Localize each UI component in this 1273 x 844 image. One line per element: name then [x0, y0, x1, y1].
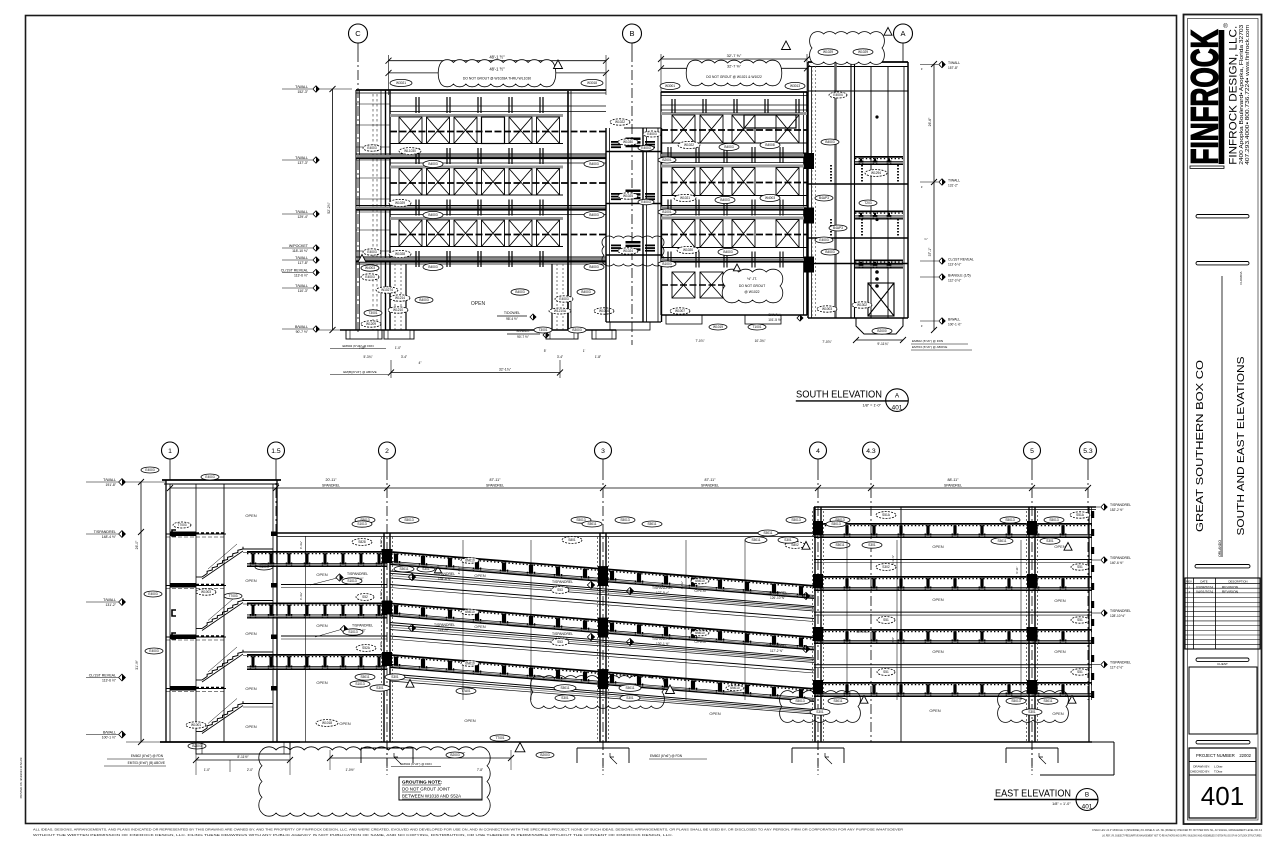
svg-text:48'-1 ½": 48'-1 ½" [489, 55, 505, 60]
svg-text:OPEN: OPEN [245, 513, 256, 518]
svg-text:S53: S53 [557, 640, 563, 644]
svg-text:6N010: 6N010 [695, 579, 705, 583]
svg-text:S301: S301 [868, 543, 876, 547]
svg-text:87'-11": 87'-11" [490, 478, 502, 482]
svg-text:B2003: B2003 [540, 753, 549, 757]
svg-text:8'-0⅜": 8'-0⅜" [379, 591, 383, 599]
svg-text:ALL IDEAS, DESIGNS, ARRANGEMEN: ALL IDEAS, DESIGNS, ARRANGEMENTS, AND PL… [33, 828, 903, 832]
svg-text:S301: S301 [1028, 710, 1036, 714]
svg-text:T/SPANDREL: T/SPANDREL [552, 580, 573, 584]
svg-text:SPANDREL: SPANDREL [322, 484, 340, 488]
svg-text:OPEN: OPEN [694, 639, 705, 644]
svg-text:S5013: S5013 [1005, 518, 1014, 522]
svg-text:T/SPANDREL: T/SPANDREL [347, 572, 368, 576]
svg-text:W1022: W1022 [684, 143, 694, 147]
svg-text:T/SPANDREL: T/SPANDREL [766, 644, 787, 648]
svg-text:T/WALL: T/WALL [948, 61, 960, 65]
svg-text:W1214: W1214 [395, 296, 405, 300]
svg-text:E4004: E4004 [833, 93, 842, 97]
svg-text:CHALK LEV: 24 4" MODULE: 0 (: CHALK LEV: 24 4" MODULE: 0 (SPANDREL) 8:… [1092, 829, 1263, 832]
svg-text:W3013: W3013 [790, 84, 800, 88]
svg-text:T/SPANDREL: T/SPANDREL [352, 624, 373, 628]
svg-text:EM602 (6"x6") @ FDN: EM602 (6"x6") @ FDN [912, 339, 943, 343]
svg-text:6'-4¾": 6'-4¾" [299, 541, 303, 549]
svg-text:32'-1¾": 32'-1¾" [499, 368, 512, 372]
svg-text:OPEN: OPEN [316, 572, 327, 577]
svg-text:137'-3": 137'-3" [297, 161, 308, 165]
svg-text:REV: REV [1186, 580, 1192, 584]
svg-text:W1029: W1029 [395, 201, 405, 205]
svg-text:FLORIDA: FLORIDA [1239, 271, 1243, 284]
svg-text:SOUTH ELEVATION: SOUTH ELEVATION [796, 390, 882, 401]
svg-text:T/WALL: T/WALL [103, 478, 116, 482]
svg-text:W1209: W1209 [366, 322, 376, 326]
svg-text:T/SPANDREL: T/SPANDREL [434, 572, 455, 576]
svg-text:T/WALL: T/WALL [948, 179, 960, 183]
svg-text:129'-4": 129'-4" [297, 215, 308, 219]
svg-text:SOUTH AND EAST ELEVATIONS: SOUTH AND EAST ELEVATIONS [1236, 356, 1247, 535]
svg-text:W1020: W1020 [683, 248, 693, 252]
svg-text:4'-8¾": 4'-8¾" [457, 566, 461, 574]
svg-text:W1210: W1210 [393, 308, 403, 312]
svg-text:6N010: 6N010 [730, 686, 740, 690]
svg-text:B4AP3: B4AP3 [819, 196, 829, 200]
svg-text:S5011: S5011 [588, 522, 597, 526]
svg-text:OPEN: OPEN [316, 623, 327, 628]
svg-text:7'-0⅞": 7'-0⅞" [822, 340, 832, 344]
svg-text:T7003: T7003 [228, 594, 237, 598]
svg-text:S301: S301 [391, 675, 399, 679]
svg-text:W/POCKET: W/POCKET [289, 244, 309, 248]
svg-text:DO NOT GROUT @ W1028A THRU WL1: DO NOT GROUT @ W1028A THRU WL1030 [463, 77, 531, 81]
svg-text:BETWEEN W1018 AND S52A: BETWEEN W1018 AND S52A [402, 794, 461, 799]
svg-text:S51: S51 [1077, 565, 1083, 569]
svg-text:OPEN: OPEN [471, 301, 486, 307]
svg-text:B4003: B4003 [419, 298, 428, 302]
svg-text:OPEN: OPEN [1054, 544, 1065, 549]
svg-text:5.3: 5.3 [1083, 448, 1093, 455]
svg-text:W1029: W1029 [858, 50, 868, 54]
svg-text:6N010: 6N010 [465, 559, 475, 563]
svg-text:PRINTED ON: 4/12/2024 10:52 AM: PRINTED ON: 4/12/2024 10:52 AM [19, 758, 23, 799]
svg-text:S51: S51 [883, 670, 889, 674]
svg-text:W4003: W4003 [765, 196, 775, 200]
svg-text:¾": ¾" [924, 237, 928, 241]
svg-text:3'-4": 3'-4" [557, 355, 563, 359]
svg-text:EM703 (6"x6") (B) ABOVE: EM703 (6"x6") (B) ABOVE [128, 761, 165, 765]
svg-text:B4003: B4003 [428, 162, 437, 166]
svg-text:B4003: B4003 [428, 213, 437, 217]
svg-text:SPANDREL: SPANDREL [944, 484, 962, 488]
svg-text:S5011: S5011 [561, 686, 570, 690]
svg-text:4: 4 [816, 448, 820, 455]
svg-text:191'-8": 191'-8" [105, 483, 116, 487]
svg-text:T3001: T3001 [368, 311, 377, 315]
svg-text:B4003: B4003 [720, 198, 729, 202]
svg-text:S5011: S5011 [752, 538, 761, 542]
svg-text:B4008: B4008 [765, 143, 774, 147]
svg-text:4.3: 4.3 [866, 448, 876, 455]
svg-text:134'-8 ½": 134'-8 ½" [438, 577, 451, 581]
svg-text:S5013: S5013 [1011, 699, 1020, 703]
svg-text:DO NOT GROUT: DO NOT GROUT [739, 284, 765, 288]
svg-text:T/DOWEL: T/DOWEL [504, 311, 520, 315]
svg-text:110'-3": 110'-3" [298, 289, 309, 293]
svg-text:E4003: E4003 [641, 146, 650, 150]
svg-text:@ W1022: @ W1022 [744, 290, 759, 294]
svg-text:B4003: B4003 [825, 250, 834, 254]
svg-text:T/WALL: T/WALL [295, 256, 308, 260]
svg-text:T/WALL: T/WALL [103, 598, 116, 602]
svg-text:B: B [1085, 792, 1089, 799]
svg-text:EM(B)(6"x6") @ ABOVE: EM(B)(6"x6") @ ABOVE [343, 370, 376, 374]
svg-text:S51A: S51A [1076, 513, 1085, 517]
svg-text:GREAT SOUTHERN BOX CO: GREAT SOUTHERN BOX CO [1195, 360, 1206, 532]
svg-text:B1003: B1003 [662, 262, 671, 266]
svg-text:T3001: T3001 [538, 328, 547, 332]
svg-text:401: 401 [1201, 781, 1244, 811]
svg-text:1'-8": 1'-8" [595, 355, 601, 359]
svg-text:B: B [629, 29, 634, 38]
svg-text:B2001: B2001 [662, 158, 671, 162]
svg-text:S5013: S5013 [831, 522, 840, 526]
svg-text:120'-1 ½": 120'-1 ½" [656, 642, 669, 646]
svg-text:E4003: E4003 [819, 238, 828, 242]
svg-text:CL/1ST REVEAL: CL/1ST REVEAL [948, 258, 974, 262]
svg-text:8'-11½": 8'-11½" [237, 755, 249, 759]
svg-text:E4003: E4003 [641, 200, 650, 204]
svg-text:157'-8": 157'-8" [948, 66, 958, 70]
svg-text:48'-1 ½": 48'-1 ½" [489, 67, 505, 72]
svg-text:126'-10 ⅝": 126'-10 ⅝" [770, 596, 785, 600]
svg-text:SPANDREL: SPANDREL [486, 484, 504, 488]
svg-text:W1030: W1030 [623, 140, 633, 144]
svg-text:B/WALL: B/WALL [948, 318, 960, 322]
svg-text:OPEN: OPEN [245, 631, 256, 636]
svg-text:B/WALL: B/WALL [295, 325, 308, 329]
svg-text:T/SPANDREL: T/SPANDREL [1110, 556, 1131, 560]
svg-text:W4003: W4003 [365, 266, 375, 270]
svg-text:S301: S301 [561, 696, 569, 700]
svg-text:T7003: T7003 [177, 523, 186, 527]
svg-text:S301: S301 [816, 710, 824, 714]
svg-text:E4003: E4003 [365, 275, 374, 279]
svg-text:OPEN: OPEN [694, 588, 705, 593]
svg-text:S5013: S5013 [795, 699, 804, 703]
svg-text:OPEN: OPEN [464, 718, 475, 723]
svg-text:90'-7 ½": 90'-7 ½" [517, 335, 529, 339]
svg-text:S5011: S5011 [400, 567, 409, 571]
svg-text:407.293.4000▪ 800.736.7224▪ ww: 407.293.4000▪ 800.736.7224▪ www.finfrock… [1245, 25, 1251, 165]
svg-text:113'-6 ½": 113'-6 ½" [948, 263, 961, 267]
svg-text:B4003: B4003 [581, 290, 590, 294]
svg-text:S51: S51 [883, 618, 889, 622]
svg-text:1'-0": 1'-0" [204, 768, 210, 772]
svg-text:S802: S802 [791, 543, 799, 547]
svg-text:B/ANGLE (1/5): B/ANGLE (1/5) [948, 274, 971, 278]
svg-text:B/WALL: B/WALL [103, 731, 116, 735]
svg-text:S52A: S52A [362, 646, 371, 650]
svg-text:5: 5 [1030, 448, 1034, 455]
svg-text:E4003: E4003 [559, 297, 568, 301]
svg-text:DO NOT GROUT @ W1021 & W1022: DO NOT GROUT @ W1021 & W1022 [706, 75, 762, 79]
svg-text:CLIENT: CLIENT [1217, 662, 1228, 666]
svg-text:W1001: W1001 [191, 723, 201, 727]
svg-text:32'-7 ⅝": 32'-7 ⅝" [727, 53, 742, 58]
svg-text:152'-2 ½": 152'-2 ½" [1110, 508, 1123, 512]
svg-text:8'-0⅜": 8'-0⅜" [379, 642, 383, 650]
svg-text:3'-4": 3'-4" [401, 355, 407, 359]
svg-text:T/SPANDREL: T/SPANDREL [652, 637, 673, 641]
svg-text:4": 4" [419, 361, 422, 365]
svg-text:T203: T203 [864, 201, 871, 205]
svg-text:W1019: W1019 [713, 325, 723, 329]
svg-text:5': 5' [544, 349, 547, 353]
svg-text:152'-3": 152'-3" [297, 90, 308, 94]
svg-text:A: A [900, 29, 905, 38]
svg-text:DESCRIPTION: DESCRIPTION [1228, 580, 1247, 584]
svg-text:OPEN: OPEN [709, 711, 720, 716]
svg-text:T/SPANDREL: T/SPANDREL [434, 623, 455, 627]
svg-text:S1013: S1013 [348, 630, 357, 634]
svg-text:S302: S302 [882, 565, 890, 569]
svg-text:OPEN: OPEN [932, 649, 943, 654]
svg-text:E4003: E4003 [148, 592, 157, 596]
svg-text:S52: S52 [362, 595, 368, 599]
svg-text:5'-3¾": 5'-3¾" [363, 355, 372, 359]
svg-text:B4003: B4003 [515, 290, 524, 294]
svg-text:1'-0": 1'-0" [395, 346, 401, 350]
svg-text:B4AP3: B4AP3 [833, 226, 843, 230]
svg-text:8'-0⅜": 8'-0⅜" [379, 539, 383, 547]
svg-text:S5011: S5011 [998, 539, 1007, 543]
svg-text:WL1030: WL1030 [404, 149, 416, 153]
svg-text:140'-6 ½": 140'-6 ½" [1110, 561, 1123, 565]
svg-text:98'-4 ½": 98'-4 ½" [506, 317, 518, 321]
svg-text:OPEN: OPEN [1052, 711, 1063, 716]
svg-text:W1018: W1018 [322, 721, 332, 725]
svg-text:WITHOUT THE WRITTEN PERMISSION: WITHOUT THE WRITTEN PERMISSION OF FINFRO… [33, 833, 674, 837]
svg-text:B4003: B4003 [724, 145, 733, 149]
svg-text:W3001: W3001 [665, 84, 675, 88]
svg-text:W1021: W1021 [680, 196, 690, 200]
svg-text:W3018: W3018 [587, 81, 597, 85]
svg-text:L.Diaz: L.Diaz [1214, 765, 1223, 769]
svg-text:ORLANDO: ORLANDO [1218, 540, 1222, 557]
svg-text:87'-11": 87'-11" [705, 478, 717, 482]
svg-text:T/WALL: T/WALL [295, 210, 308, 214]
svg-text:CHECKED BY:: CHECKED BY: [1190, 770, 1210, 774]
svg-text:S5011: S5011 [626, 686, 635, 690]
svg-text:LVL PER 1 PL SUBJECT PRESUMPTI: LVL PER 1 PL SUBJECT PRESUMPTIVE MANAGEM… [1102, 835, 1262, 838]
svg-text:22002: 22002 [1239, 753, 1251, 758]
svg-text:EAST ELEVATION: EAST ELEVATION [995, 788, 1071, 799]
svg-text:E4003: E4003 [149, 649, 158, 653]
svg-text:EM602 (6"x6") @ FDN: EM602 (6"x6") @ FDN [400, 762, 431, 766]
svg-text:100'-1 ½": 100'-1 ½" [948, 323, 961, 327]
svg-text:W3021: W3021 [396, 81, 406, 85]
svg-text:E4003: E4003 [145, 468, 154, 472]
svg-text:6'-11": 6'-11" [1015, 566, 1019, 573]
svg-text:W1210A: W1210A [554, 309, 567, 313]
svg-text:DATE: DATE [1200, 580, 1207, 584]
svg-text:EM703 (6"x6") @ ABOVE: EM703 (6"x6") @ ABOVE [912, 345, 947, 349]
svg-text:3: 3 [601, 448, 605, 455]
svg-text:T/WALL: T/WALL [295, 156, 308, 160]
svg-text:OPEN: OPEN [1054, 598, 1065, 603]
svg-text:OPEN: OPEN [856, 629, 867, 634]
svg-text:T7001: T7001 [495, 736, 504, 740]
svg-text:B4003: B4003 [428, 265, 437, 269]
svg-text:04/01/2024: 04/01/2024 [1196, 590, 1213, 594]
svg-text:EM602 (6"x6") @ FDN: EM602 (6"x6") @ FDN [131, 754, 164, 758]
svg-text:1/8" = 1'-0": 1/8" = 1'-0" [1052, 802, 1071, 806]
svg-text:T/SPANDREL: T/SPANDREL [1110, 661, 1131, 665]
svg-text:W1302: W1302 [857, 303, 867, 307]
svg-text:OPEN: OPEN [245, 578, 256, 583]
svg-text:T/WALL: T/WALL [295, 85, 308, 89]
svg-text:S301: S301 [1046, 539, 1054, 543]
svg-text:6'-4¾": 6'-4¾" [299, 592, 303, 600]
svg-text:S301: S301 [626, 696, 634, 700]
svg-text:T/SPANDREL: T/SPANDREL [652, 586, 673, 590]
svg-text:2'-0": 2'-0" [247, 768, 253, 772]
svg-text:B1001: B1001 [662, 210, 671, 214]
svg-text:T/SPANDREL: T/SPANDREL [1110, 503, 1131, 507]
svg-text:S5013: S5013 [791, 518, 800, 522]
svg-text:CL/1ST REVEAL: CL/1ST REVEAL [89, 674, 116, 678]
svg-text:118'-10 ⅜": 118'-10 ⅜" [292, 249, 309, 253]
svg-text:S5013: S5013 [404, 518, 413, 522]
svg-text:REVISION: REVISION [1222, 590, 1239, 594]
svg-text:OPEN: OPEN [245, 724, 256, 729]
svg-text:T.Diaz: T.Diaz [1214, 770, 1223, 774]
svg-text:T/SPANDREL: T/SPANDREL [552, 632, 573, 636]
svg-text:B4003: B4003 [589, 162, 598, 166]
svg-text:EM602 (6"x6") @ FDN: EM602 (6"x6") @ FDN [650, 754, 683, 758]
svg-text:W10274: W10274 [381, 288, 393, 292]
svg-text:26'-6": 26'-6" [928, 117, 932, 126]
svg-text:S1013: S1013 [355, 682, 364, 686]
svg-text:S301: S301 [784, 538, 792, 542]
svg-text:S828: S828 [358, 540, 366, 544]
svg-text:E4003: E4003 [367, 146, 376, 150]
svg-text:S51A: S51A [882, 513, 891, 517]
svg-text:113'-6 ½": 113'-6 ½" [294, 274, 309, 278]
svg-text:6N010: 6N010 [695, 631, 705, 635]
svg-text:OPEN: OPEN [856, 576, 867, 581]
svg-text:½" JT.: ½" JT. [747, 277, 757, 281]
svg-text:117'-2 ½": 117'-2 ½" [1110, 666, 1123, 670]
svg-text:90'-7 ½": 90'-7 ½" [296, 330, 309, 334]
svg-text:OPEN: OPEN [932, 597, 943, 602]
svg-text:S5011: S5011 [1044, 699, 1053, 703]
svg-text:401: 401 [1082, 804, 1093, 811]
svg-text:S5011: S5011 [834, 699, 843, 703]
svg-text:S801: S801 [568, 538, 576, 542]
svg-text:4'-8": 4'-8" [891, 637, 895, 643]
svg-text:OPEN: OPEN [474, 624, 485, 629]
svg-text:31'-½": 31'-½" [135, 659, 139, 669]
svg-text:7'-0⅞": 7'-0⅞" [695, 339, 704, 343]
svg-text:401: 401 [892, 404, 903, 411]
svg-text:9'-11¾": 9'-11¾" [877, 342, 889, 346]
svg-text:S5011: S5011 [361, 675, 370, 679]
svg-text:100'-1 ½": 100'-1 ½" [102, 736, 117, 740]
svg-text:FINFROCK DESIGN, LLC.: FINFROCK DESIGN, LLC. [1228, 26, 1240, 165]
svg-text:W1025: W1025 [623, 194, 633, 198]
svg-text:S1013: S1013 [347, 579, 356, 583]
svg-text:7'-8": 7'-8" [477, 768, 483, 772]
svg-text:T/WALL: T/WALL [295, 284, 308, 288]
svg-text:1/8" = 1'-0": 1/8" = 1'-0" [862, 404, 881, 408]
svg-text:DRAWN BY:: DRAWN BY: [1193, 765, 1210, 769]
svg-text:W1024: W1024 [623, 249, 633, 253]
svg-text:E4003: E4003 [367, 250, 376, 254]
svg-text:CL/1ST REVEAL: CL/1ST REVEAL [281, 269, 308, 273]
svg-text:52'-2¾": 52'-2¾" [327, 201, 331, 213]
svg-text:OPEN: OPEN [245, 686, 256, 691]
svg-text:B2003: B2003 [450, 753, 459, 757]
svg-text:W1007: W1007 [675, 309, 685, 313]
svg-text:OPEN: OPEN [1054, 649, 1065, 654]
svg-text:OPEN: OPEN [474, 573, 485, 578]
svg-text:T/SPANDREL: T/SPANDREL [94, 530, 116, 534]
svg-text:S51: S51 [1077, 618, 1083, 622]
svg-text:6N010: 6N010 [465, 662, 475, 666]
svg-text:B4003: B4003 [825, 140, 834, 144]
svg-text:B4003: B4003 [589, 213, 598, 217]
svg-text:SPANDREL: SPANDREL [701, 484, 719, 488]
svg-text:S51: S51 [1077, 670, 1083, 674]
svg-text:T1001: T1001 [752, 325, 761, 329]
svg-text:REVISION: REVISION [1222, 585, 1239, 589]
svg-text:W1003: W1003 [822, 307, 832, 311]
svg-text:148'-4 ½": 148'-4 ½" [102, 535, 117, 539]
svg-text:OPEN: OPEN [929, 708, 940, 713]
svg-text:S53: S53 [557, 588, 563, 592]
svg-text:B2000: B2000 [877, 329, 886, 333]
svg-text:117'-2 ⅝": 117'-2 ⅝" [770, 649, 783, 653]
svg-text:W1003: W1003 [201, 590, 211, 594]
svg-text:S5011: S5011 [764, 531, 773, 535]
svg-text:W1016: W1016 [599, 309, 609, 313]
svg-text:4'-8¾": 4'-8¾" [680, 581, 684, 589]
svg-text:OPEN: OPEN [316, 680, 327, 685]
svg-text:32'-7 ⅝": 32'-7 ⅝" [727, 65, 742, 69]
svg-text:W1028: W1028 [395, 252, 405, 256]
svg-text:OPEN: OPEN [932, 544, 943, 549]
svg-text:128'-10 ½": 128'-10 ½" [1110, 614, 1125, 618]
svg-text:1: 1 [168, 448, 172, 455]
svg-text:131'-2": 131'-2" [105, 603, 116, 607]
svg-text:26'-0": 26'-0" [135, 540, 139, 549]
svg-text:101'-5 ½": 101'-5 ½" [768, 318, 781, 322]
svg-text:B3003: B3003 [572, 328, 581, 332]
svg-text:6'-11⅞": 6'-11⅞" [891, 555, 895, 565]
svg-text:117'-8": 117'-8" [298, 261, 309, 265]
svg-text:S301: S301 [376, 686, 384, 690]
svg-text:E4003: E4003 [647, 132, 656, 136]
svg-text:GROUTING NOTE:: GROUTING NOTE: [402, 780, 443, 785]
svg-text:6N010: 6N010 [465, 610, 475, 614]
svg-text:S5011: S5011 [648, 522, 657, 526]
svg-text:B4003: B4003 [589, 265, 598, 269]
svg-text:A: A [895, 392, 900, 399]
svg-text:S5013: S5013 [620, 518, 629, 522]
svg-text:B4003: B4003 [723, 250, 732, 254]
svg-text:S5013: S5013 [1049, 518, 1058, 522]
